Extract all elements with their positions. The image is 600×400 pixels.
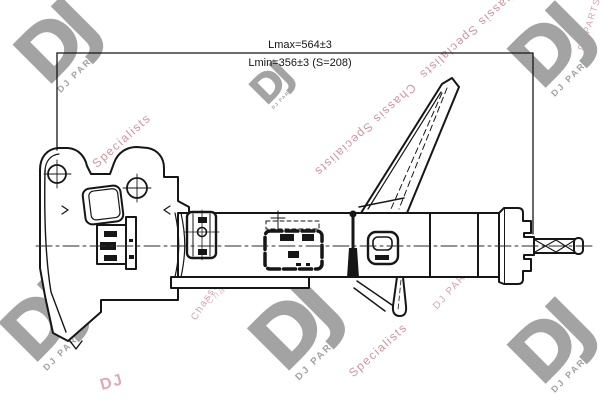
technical-drawing-canvas: Chassis Specialists Chassis Specialists … xyxy=(0,0,600,400)
tube-clamp-bracket xyxy=(184,210,219,260)
bracket-connector xyxy=(97,217,136,269)
lmin-dimension-label: Lmin=356±3 (S=208) xyxy=(248,57,351,69)
knuckle-bracket xyxy=(40,147,189,349)
lmax-dimension-label: Lmax=564±3 xyxy=(268,39,332,51)
tube-bottom-flange xyxy=(171,277,309,288)
spring-seat xyxy=(354,78,459,316)
bracket-boss xyxy=(82,185,124,225)
reservoir-tube xyxy=(171,210,500,288)
seat-bracket xyxy=(368,232,398,264)
strut-diagram: Lmax=564±3 Lmin=356±3 (S=208) xyxy=(0,0,600,400)
